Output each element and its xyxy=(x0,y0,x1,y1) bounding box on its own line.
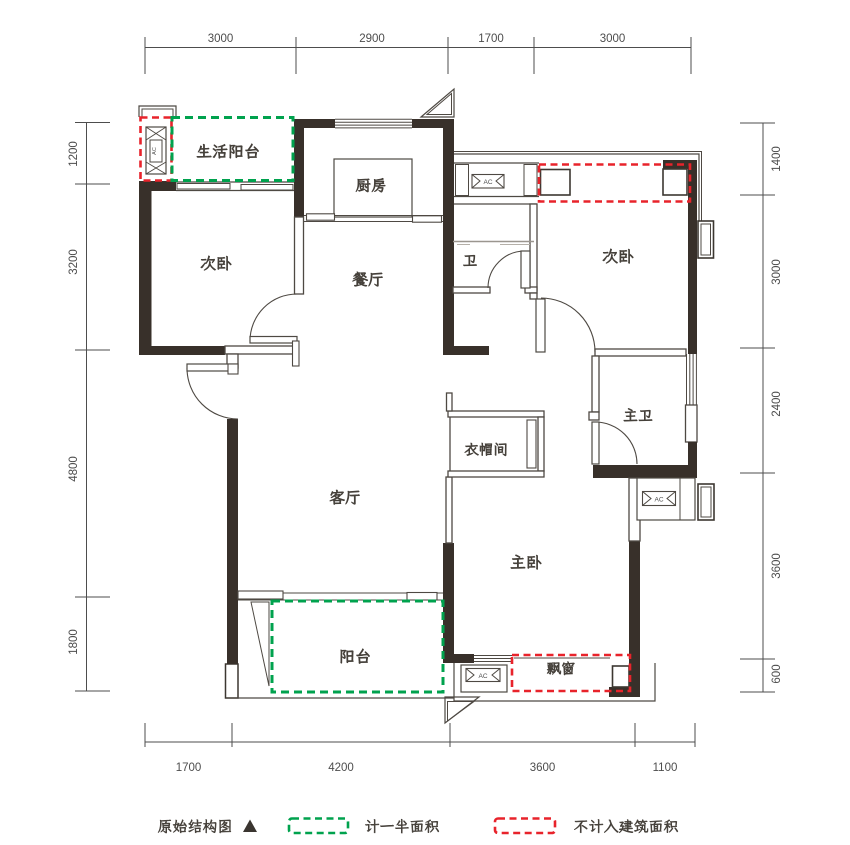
svg-text:1100: 1100 xyxy=(653,762,678,774)
svg-text:3000: 3000 xyxy=(208,33,234,45)
svg-text:2900: 2900 xyxy=(359,33,385,45)
svg-text:4800: 4800 xyxy=(68,456,80,482)
svg-text:2400: 2400 xyxy=(771,391,783,417)
svg-text:1400: 1400 xyxy=(771,146,783,172)
svg-text:1200: 1200 xyxy=(68,141,80,167)
svg-text:AC: AC xyxy=(152,147,158,155)
svg-text:3000: 3000 xyxy=(600,33,626,45)
svg-text:4200: 4200 xyxy=(328,762,354,774)
svg-text:AC: AC xyxy=(483,179,492,186)
svg-text:1700: 1700 xyxy=(478,33,504,45)
svg-text:3600: 3600 xyxy=(771,553,783,579)
svg-text:AC: AC xyxy=(478,673,487,680)
svg-text:3600: 3600 xyxy=(530,762,556,774)
svg-text:3200: 3200 xyxy=(68,249,80,275)
svg-text:3000: 3000 xyxy=(771,259,783,285)
svg-text:AC: AC xyxy=(654,497,663,504)
svg-text:600: 600 xyxy=(771,664,783,683)
svg-text:1800: 1800 xyxy=(68,629,80,655)
svg-text:1700: 1700 xyxy=(176,762,202,774)
